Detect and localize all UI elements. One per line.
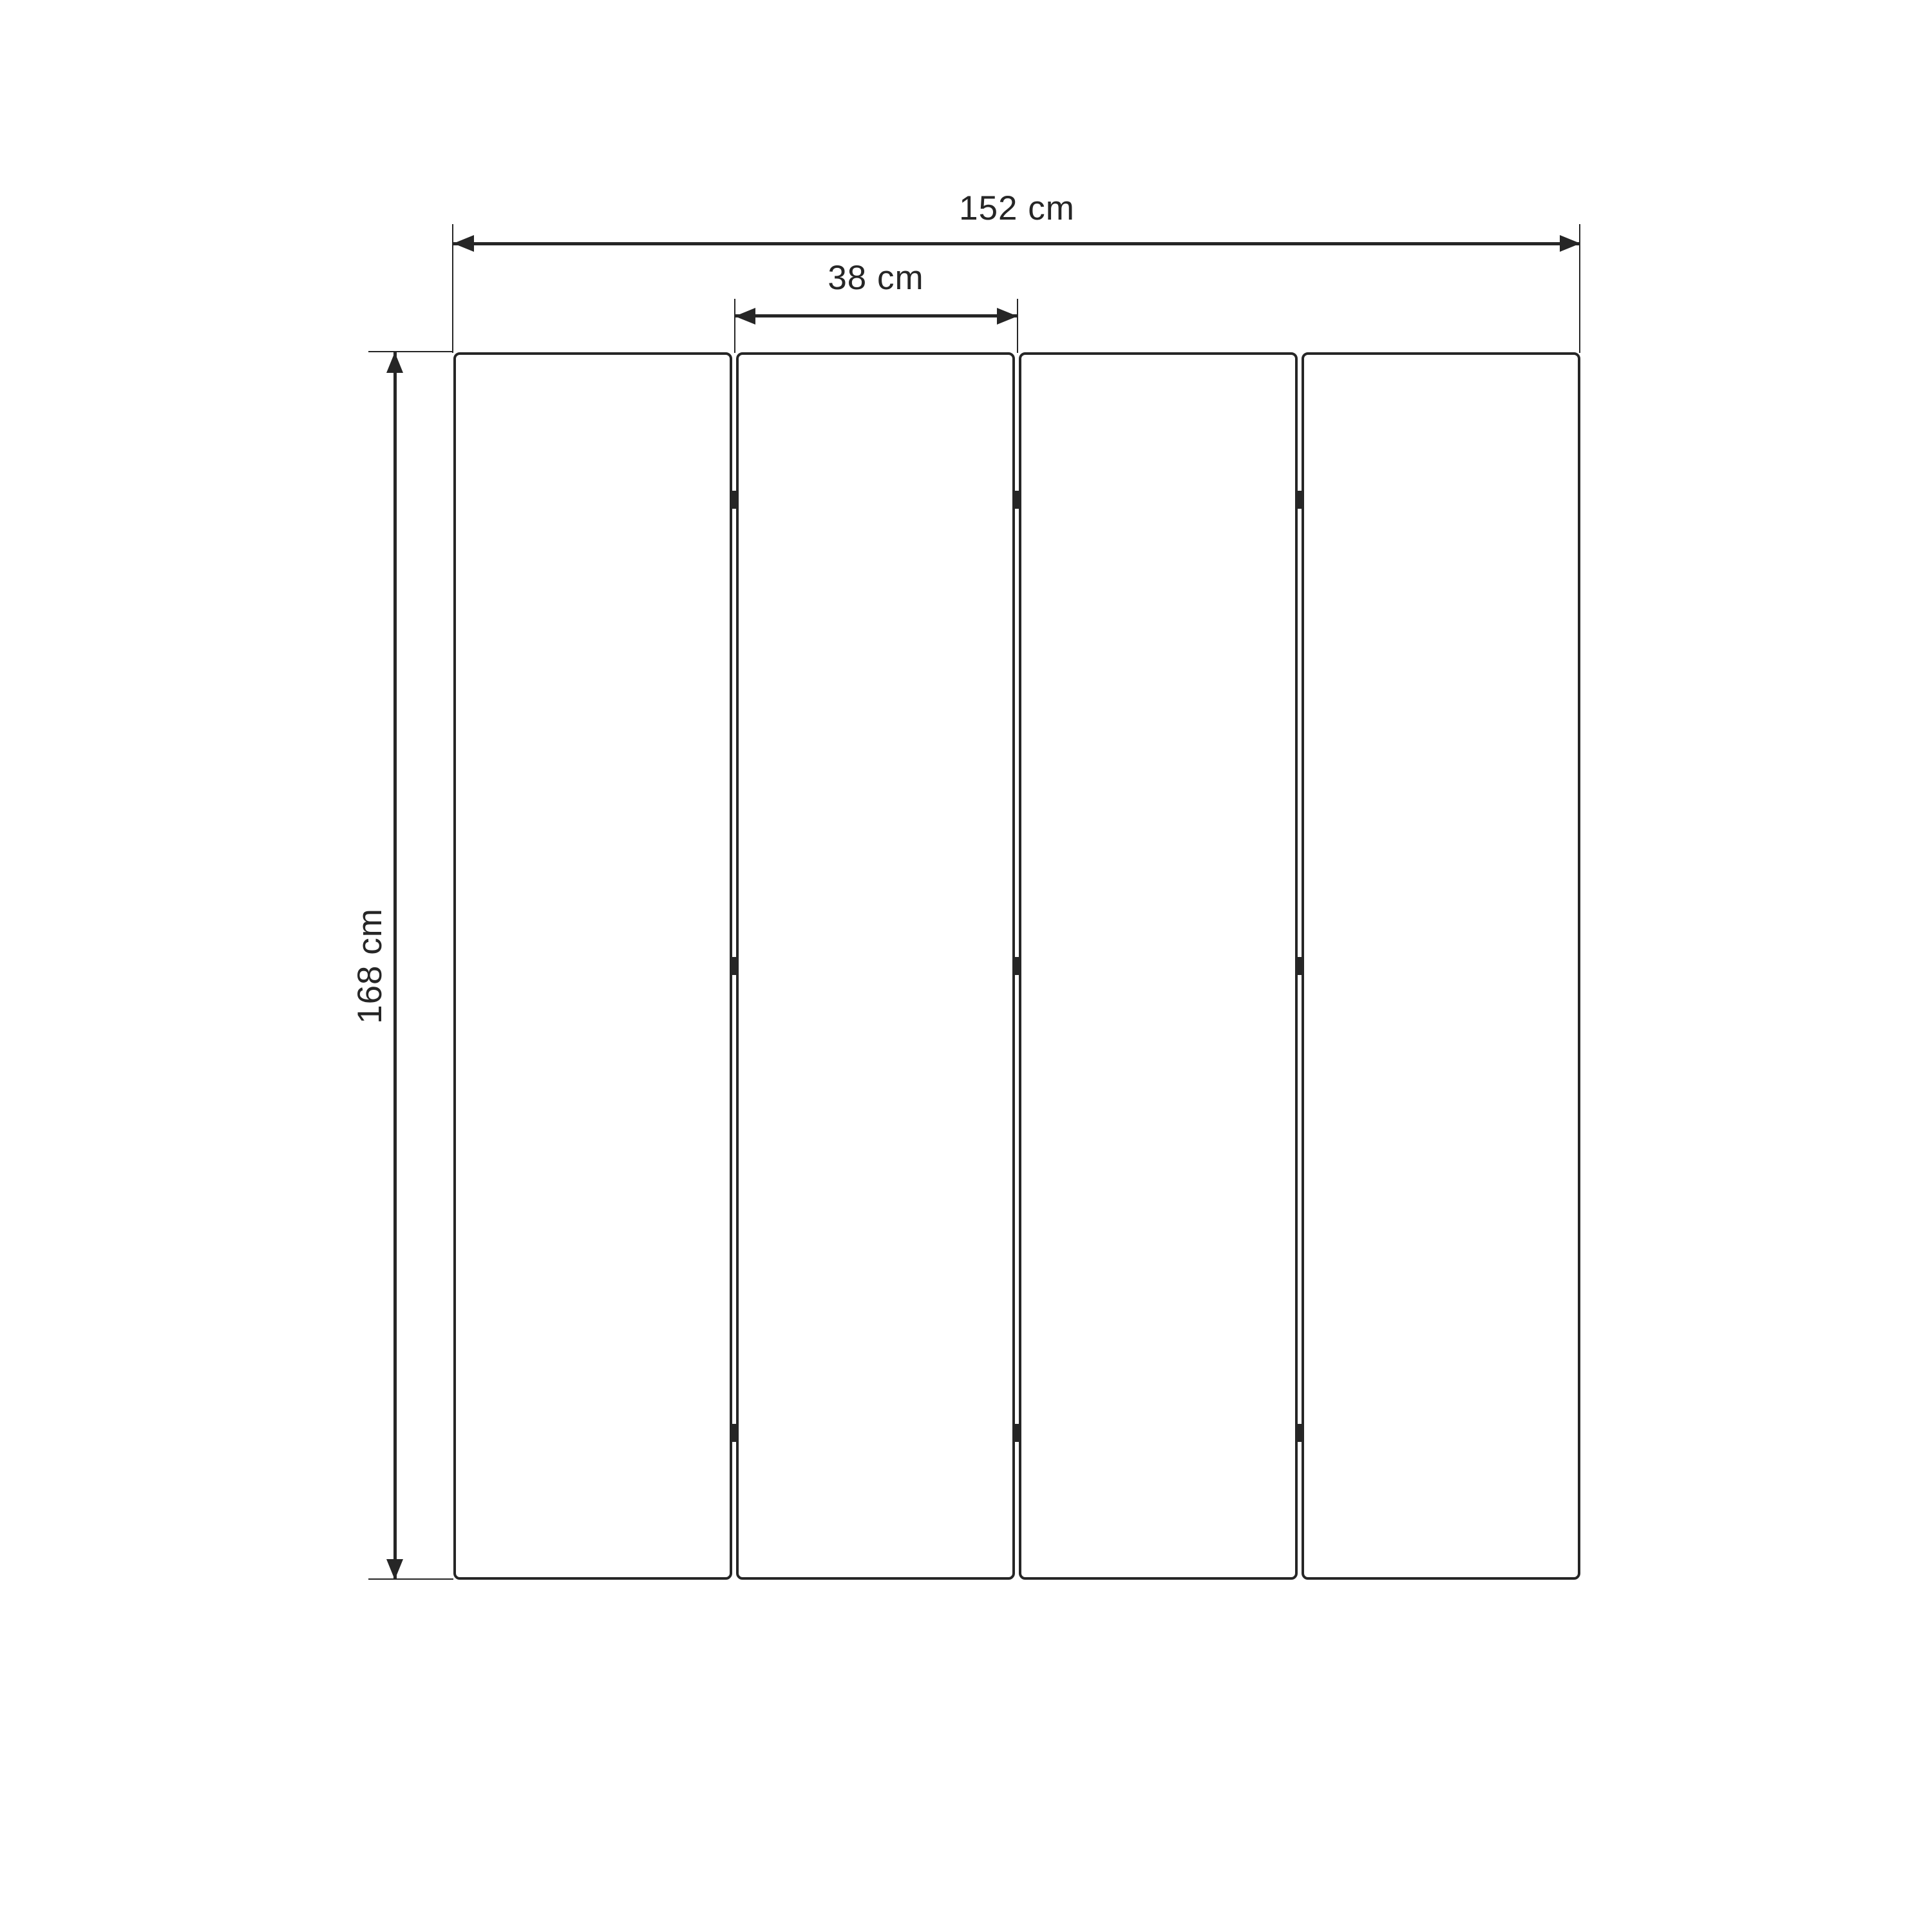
panel-3 bbox=[1019, 352, 1298, 1580]
hinge-gap1-row2 bbox=[730, 957, 738, 975]
panel-1 bbox=[453, 352, 732, 1580]
panel-4 bbox=[1302, 352, 1580, 1580]
hinge-gap3-row2 bbox=[1296, 957, 1303, 975]
extension-line-bottom bbox=[368, 1578, 453, 1580]
panel-width-label: 38 cm bbox=[747, 259, 1005, 298]
total-width-label: 152 cm bbox=[888, 189, 1146, 228]
height-label: 168 cm bbox=[351, 837, 390, 1095]
arrowhead-left-icon bbox=[735, 308, 755, 325]
dimension-line-panel-width bbox=[735, 314, 1018, 317]
hinge-gap2-row2 bbox=[1013, 957, 1021, 975]
hinge-gap2-row1 bbox=[1013, 491, 1021, 509]
panel-2 bbox=[736, 352, 1015, 1580]
dimension-diagram: 152 cm 38 cm 168 cm bbox=[0, 0, 1932, 1932]
dimension-line-height bbox=[393, 352, 397, 1580]
arrowhead-right-icon bbox=[1560, 235, 1580, 252]
extension-line-right bbox=[1017, 299, 1018, 353]
extension-line-left bbox=[734, 299, 735, 353]
hinge-gap3-row1 bbox=[1296, 491, 1303, 509]
hinge-gap1-row3 bbox=[730, 1424, 738, 1442]
arrowhead-up-icon bbox=[386, 352, 403, 373]
arrowhead-down-icon bbox=[386, 1559, 403, 1580]
hinge-gap3-row3 bbox=[1296, 1424, 1303, 1442]
hinge-gap1-row1 bbox=[730, 491, 738, 509]
extension-line-top bbox=[368, 351, 453, 352]
dimension-line-total-width bbox=[453, 242, 1580, 245]
arrowhead-left-icon bbox=[453, 235, 474, 252]
arrowhead-right-icon bbox=[997, 308, 1018, 325]
hinge-gap2-row3 bbox=[1013, 1424, 1021, 1442]
